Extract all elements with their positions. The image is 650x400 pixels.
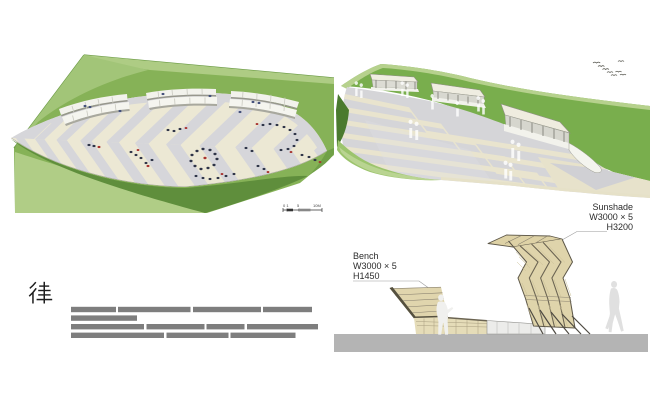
- svg-text:0 1: 0 1: [283, 203, 289, 208]
- svg-text:W3000 × 5: W3000 × 5: [353, 261, 397, 271]
- svg-text:H3200: H3200: [606, 222, 633, 232]
- svg-text:W3000 × 5: W3000 × 5: [589, 212, 633, 222]
- svg-text:10M: 10M: [313, 203, 321, 208]
- svg-text:H1450: H1450: [353, 271, 380, 281]
- svg-text:Sunshade: Sunshade: [592, 202, 633, 212]
- svg-text:Bench: Bench: [353, 251, 379, 261]
